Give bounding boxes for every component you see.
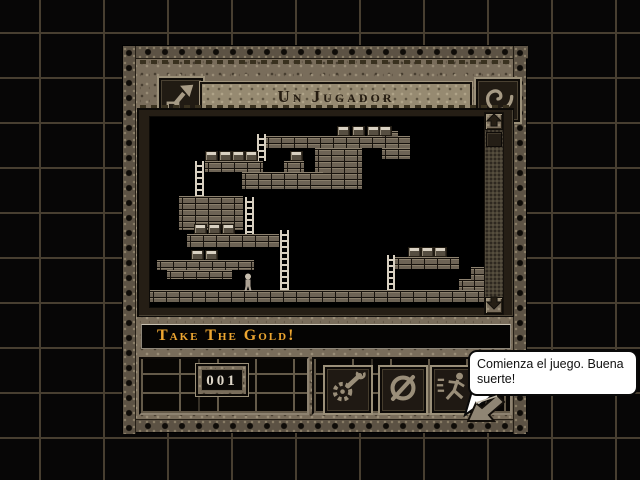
brick-platform <box>157 260 254 270</box>
gold-chest <box>191 250 204 260</box>
ladder <box>257 134 266 161</box>
brick-platform <box>187 234 279 247</box>
brick-platform <box>205 161 263 172</box>
mouse-cursor <box>467 394 507 429</box>
brick-platform <box>459 279 471 290</box>
brick-platform <box>471 267 484 290</box>
gold-chest <box>408 247 421 257</box>
scrollbar-vertical <box>484 112 504 315</box>
ladder <box>387 255 395 290</box>
window-frame-left <box>123 46 136 434</box>
window-title: Un Jugador <box>277 87 394 106</box>
brick-platform <box>395 257 459 269</box>
player-sprite <box>242 273 254 296</box>
speech-bubble-text: Comienza el juego. Buena suerte! <box>477 357 624 386</box>
level-canvas <box>150 117 484 307</box>
brick-platform <box>284 161 304 172</box>
arrow-down-icon <box>485 295 503 317</box>
brick-platform <box>382 148 410 159</box>
gold-chest <box>245 151 258 161</box>
gold-chest <box>421 247 434 257</box>
gold-chest <box>219 151 232 161</box>
counter-value: 001 <box>202 370 242 390</box>
gold-chest <box>208 224 221 234</box>
gold-chest <box>194 224 207 234</box>
scroll-thumb[interactable] <box>486 132 502 147</box>
tools-button[interactable] <box>325 367 371 413</box>
brick-platform <box>167 270 232 279</box>
gold-chest <box>222 224 235 234</box>
desktop-background: Un Jugador <box>0 0 640 480</box>
gold-chest <box>434 247 447 257</box>
scroll-down-button[interactable] <box>485 297 503 314</box>
game-viewport[interactable] <box>150 117 484 307</box>
gold-chest <box>352 126 365 136</box>
game-window: Un Jugador <box>122 45 527 433</box>
gold-chest <box>232 151 245 161</box>
arrow-up-icon <box>485 111 503 133</box>
window-frame-top <box>123 46 528 59</box>
gold-chest <box>290 151 303 161</box>
gear-wrench-icon <box>328 368 368 413</box>
brick-platform <box>265 136 410 148</box>
status-panel: 001 <box>136 354 515 421</box>
brick-platform <box>242 172 323 189</box>
gold-chest <box>337 126 350 136</box>
ladder <box>195 161 204 196</box>
gold-chest <box>205 250 218 260</box>
level-counter: 001 <box>196 364 248 396</box>
brick-platform <box>150 290 484 302</box>
window-header: Un Jugador <box>136 59 515 111</box>
ladder <box>245 197 254 234</box>
gold-chest <box>379 126 392 136</box>
speech-bubble: Comienza el juego. Buena suerte! <box>468 350 638 396</box>
message-text: Take The Gold! <box>157 327 295 344</box>
message-bar: Take The Gold! <box>141 324 511 349</box>
scroll-up-button[interactable] <box>485 113 503 130</box>
abort-button[interactable] <box>380 367 426 413</box>
game-section <box>137 108 514 317</box>
ladder <box>280 230 289 290</box>
null-sign-icon <box>383 368 423 413</box>
gold-chest <box>205 151 218 161</box>
